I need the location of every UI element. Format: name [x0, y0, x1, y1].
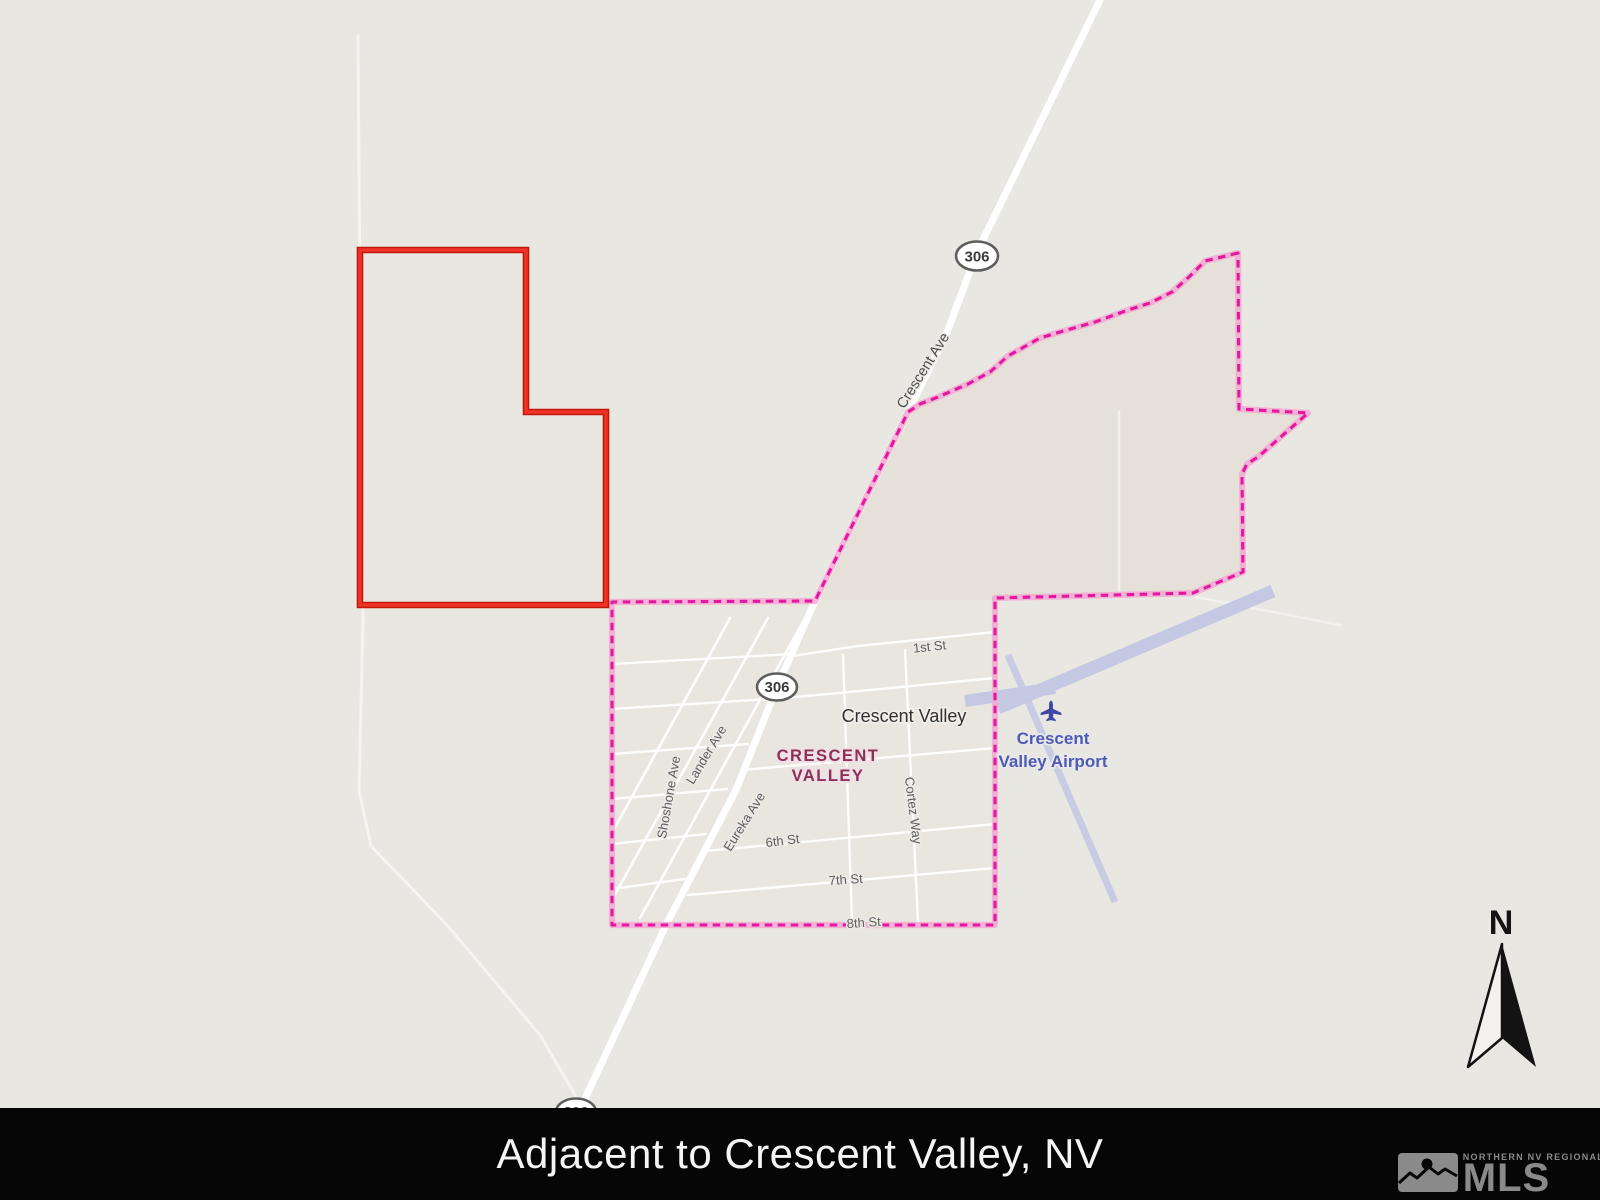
mls-name: MLS	[1463, 1162, 1550, 1195]
airport-label-line1: Crescent	[1017, 729, 1090, 748]
listing-map-screenshot: 306 306 306 Crescent Ave 1st St 6th St 7…	[0, 0, 1600, 1200]
mls-logo-icon	[1397, 1152, 1459, 1193]
route-shield-label: 306	[764, 679, 789, 696]
map-canvas: 306 306 306 Crescent Ave 1st St 6th St 7…	[0, 0, 1600, 1108]
route-shield-306-town: 306	[757, 674, 797, 701]
airport-label-line2: Valley Airport	[999, 752, 1108, 771]
eighth-st-label: 8th St	[846, 914, 881, 931]
caption-bar: Adjacent to Crescent Valley, NV NORTHERN…	[0, 1108, 1600, 1200]
locality-label-line1: CRESCENT	[777, 747, 880, 765]
route-shield-label: 306	[964, 249, 989, 266]
route-shield-306-north: 306	[956, 242, 998, 271]
town-name-label: Crescent Valley	[842, 706, 967, 726]
north-label: N	[1489, 904, 1514, 942]
locality-label-line2: VALLEY	[792, 767, 865, 785]
mls-logo: NORTHERN NV REGIONAL MLS	[1397, 1152, 1600, 1194]
seventh-st-label: 7th St	[828, 871, 863, 888]
map-background	[0, 0, 1600, 1108]
caption-title: Adjacent to Crescent Valley, NV	[0, 1108, 1600, 1200]
